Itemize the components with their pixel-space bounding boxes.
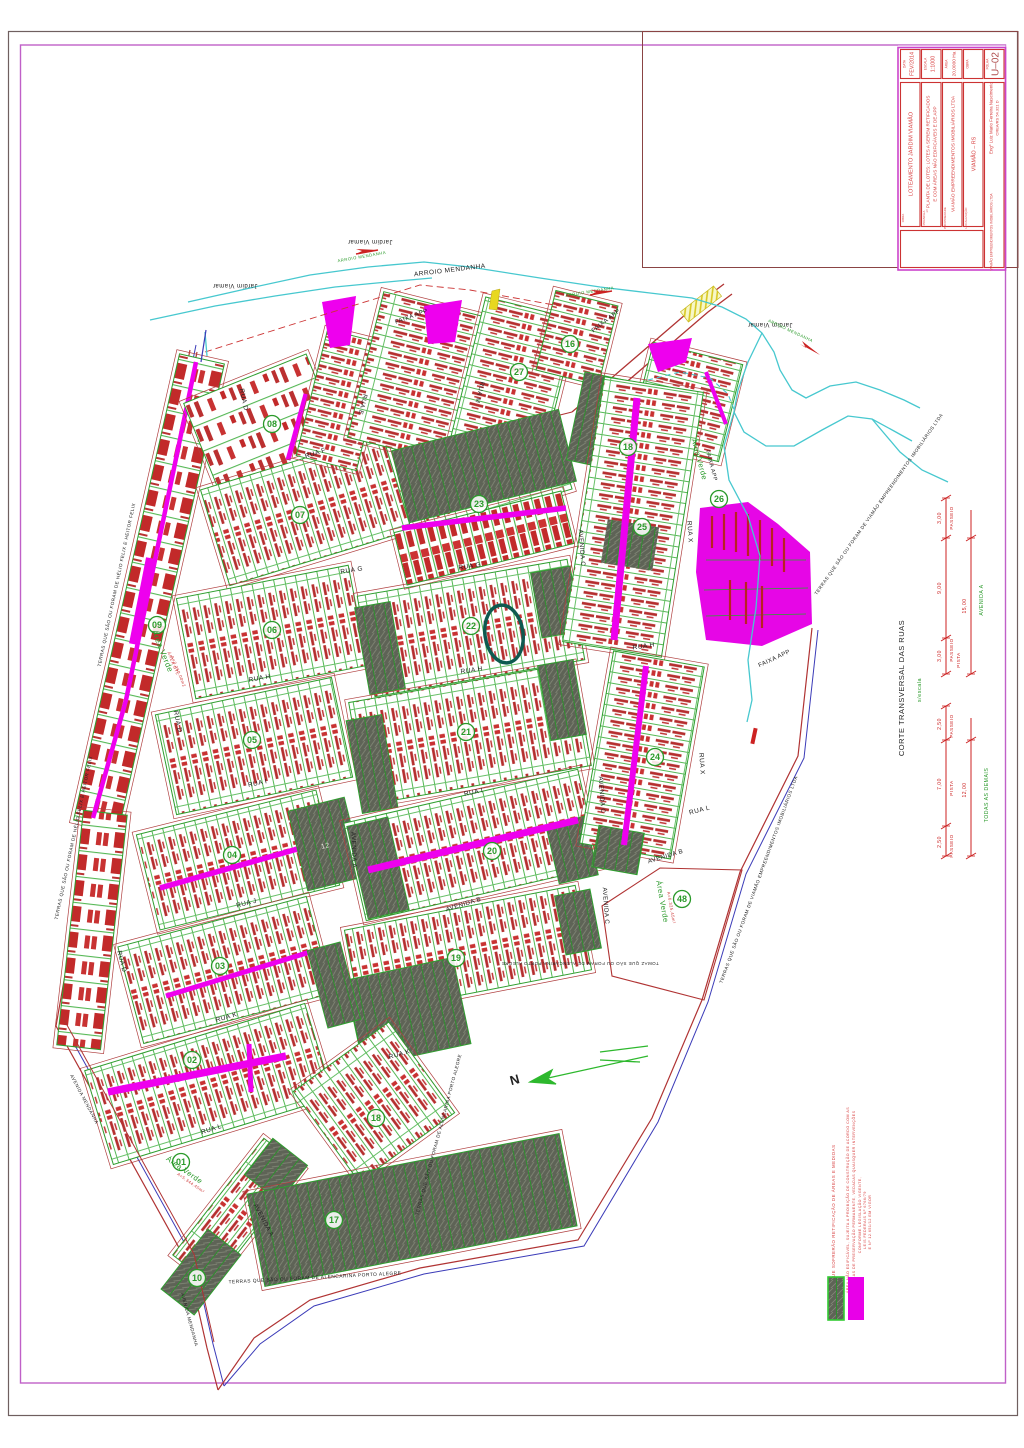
svg-text:OBRA: OBRA: [901, 214, 905, 223]
svg-text:15,00: 15,00: [962, 598, 968, 613]
svg-text:7,00: 7,00: [937, 778, 943, 790]
svg-text:VIAMÃO EMPREENDIMENTOS IMOBILI: VIAMÃO EMPREENDIMENTOS IMOBILIÁRIOS LTDA: [989, 193, 994, 271]
svg-text:CORTE TRANSVERSAL DAS RUAS: CORTE TRANSVERSAL DAS RUAS: [897, 620, 906, 756]
svg-text:27: 27: [514, 367, 524, 377]
svg-text:VIAMÃO – RS: VIAMÃO – RS: [971, 136, 978, 171]
svg-text:LOTEAMENTO JARDIM VIAMÃO: LOTEAMENTO JARDIM VIAMÃO: [908, 111, 915, 196]
svg-text:16: 16: [565, 339, 575, 349]
svg-text:AVENIDA A: AVENIDA A: [979, 584, 985, 615]
svg-text:20: 20: [487, 846, 497, 856]
svg-text:Engº Luiz Mario Ferreira N: Engº Luiz Mario Ferreira Nascimento: [989, 82, 994, 154]
svg-text:12,00: 12,00: [962, 782, 968, 797]
svg-text:E COM ÁREAS NÃO EDIFICÁVEIS E: E COM ÁREAS NÃO EDIFICÁVEIS E DE APP: [932, 106, 938, 201]
svg-text:s/escala: s/escala: [917, 677, 923, 702]
svg-text:2,50: 2,50: [937, 836, 943, 848]
svg-text:18: 18: [623, 442, 633, 452]
svg-text:ÁREA: ÁREA: [945, 59, 949, 69]
svg-text:08: 08: [267, 419, 277, 429]
svg-text:PROPRIEDADE: PROPRIEDADE: [943, 207, 947, 229]
svg-text:22: 22: [466, 621, 476, 631]
svg-text:18: 18: [371, 1113, 381, 1123]
svg-text:17: 17: [329, 1215, 339, 1225]
svg-text:19: 19: [451, 953, 461, 963]
svg-text:“” PLANTA DE LOTES: LOTES A SE: “” PLANTA DE LOTES: LOTES A SEREM RETIFI…: [926, 96, 931, 213]
svg-text:TOMAZ QUE SÃO OU FORAM DE ALEN: TOMAZ QUE SÃO OU FORAM DE ALENCARINA POR…: [501, 961, 658, 966]
svg-text:10: 10: [192, 1273, 202, 1283]
svg-text:TODAS AS DEMAIS: TODAS AS DEMAIS: [984, 768, 990, 823]
svg-text:ÁREA NÃO EDIFICÁVEL, SUJEITA A: ÁREA NÃO EDIFICÁVEL, SUJEITA A PROIBIÇÃO…: [845, 1107, 850, 1293]
svg-text:OBRA: OBRA: [966, 59, 970, 69]
svg-text:25: 25: [637, 522, 647, 532]
svg-text:U–02: U–02: [991, 52, 1002, 76]
svg-text:CREA/RS 54.321 D: CREA/RS 54.321 D: [995, 100, 1000, 135]
svg-text:06: 06: [267, 625, 277, 635]
svg-text:20,0000 Ha: 20,0000 Ha: [952, 51, 958, 76]
svg-text:PASSEIO: PASSEIO: [949, 834, 954, 857]
svg-text:02: 02: [187, 1055, 197, 1065]
svg-text:FEV/2014: FEV/2014: [910, 52, 916, 76]
svg-text:05: 05: [247, 735, 257, 745]
svg-text:LOCALIZAÇÃO: LOCALIZAÇÃO: [963, 207, 968, 229]
svg-text:24: 24: [650, 752, 660, 762]
svg-text:PISTA: PISTA: [949, 780, 954, 796]
svg-text:3,00: 3,00: [937, 650, 943, 662]
svg-text:PASSEIO: PASSEIO: [949, 638, 954, 661]
svg-text:Jardim Viamar: Jardim Viamar: [347, 238, 392, 244]
svg-text:AVENIDA A: AVENIDA A: [349, 832, 357, 869]
svg-text:PASSEIO: PASSEIO: [949, 714, 954, 737]
svg-text:Jardim Viamar: Jardim Viamar: [212, 282, 257, 288]
svg-text:2,50: 2,50: [937, 718, 943, 730]
svg-text:CONFORME LEGISLAÇÃO VIGENTE,: CONFORME LEGISLAÇÃO VIGENTE,: [857, 1177, 862, 1254]
svg-text:9,00: 9,00: [937, 582, 943, 594]
svg-text:DATA: DATA: [903, 59, 907, 68]
svg-text:21: 21: [461, 727, 471, 737]
svg-text:04: 04: [227, 850, 237, 860]
svg-text:26: 26: [714, 494, 724, 504]
svg-text:48: 48: [677, 894, 687, 904]
svg-text:PRANCHA: PRANCHA: [922, 211, 926, 226]
svg-text:23: 23: [474, 499, 484, 509]
svg-text:PISTA: PISTA: [956, 652, 961, 668]
svg-text:07: 07: [295, 510, 305, 520]
svg-text:E ÁREAS DE PRESERVAÇÃO PERMANE: E ÁREAS DE PRESERVAÇÃO PERMANENTE, VEDAD…: [851, 1110, 856, 1289]
svg-text:VIAMÃO EMPREENDIMENTOS IMOBILI: VIAMÃO EMPREENDIMENTOS IMOBILIÁRIOS LTDA: [950, 95, 957, 212]
svg-text:FOLHA: FOLHA: [986, 58, 990, 70]
svg-text:03: 03: [215, 961, 225, 971]
svg-text:1:1000: 1:1000: [931, 56, 937, 73]
svg-text:ESCALA: ESCALA: [924, 57, 928, 70]
svg-text:3,00: 3,00: [937, 512, 943, 524]
svg-text:LEIS FEDERAIS Nº 6766/79: LEIS FEDERAIS Nº 6766/79: [863, 1191, 867, 1249]
svg-text:PASSEIO: PASSEIO: [949, 506, 954, 529]
svg-text:E Nº 12.651/12 EM VIGOR: E Nº 12.651/12 EM VIGOR: [868, 1195, 872, 1250]
